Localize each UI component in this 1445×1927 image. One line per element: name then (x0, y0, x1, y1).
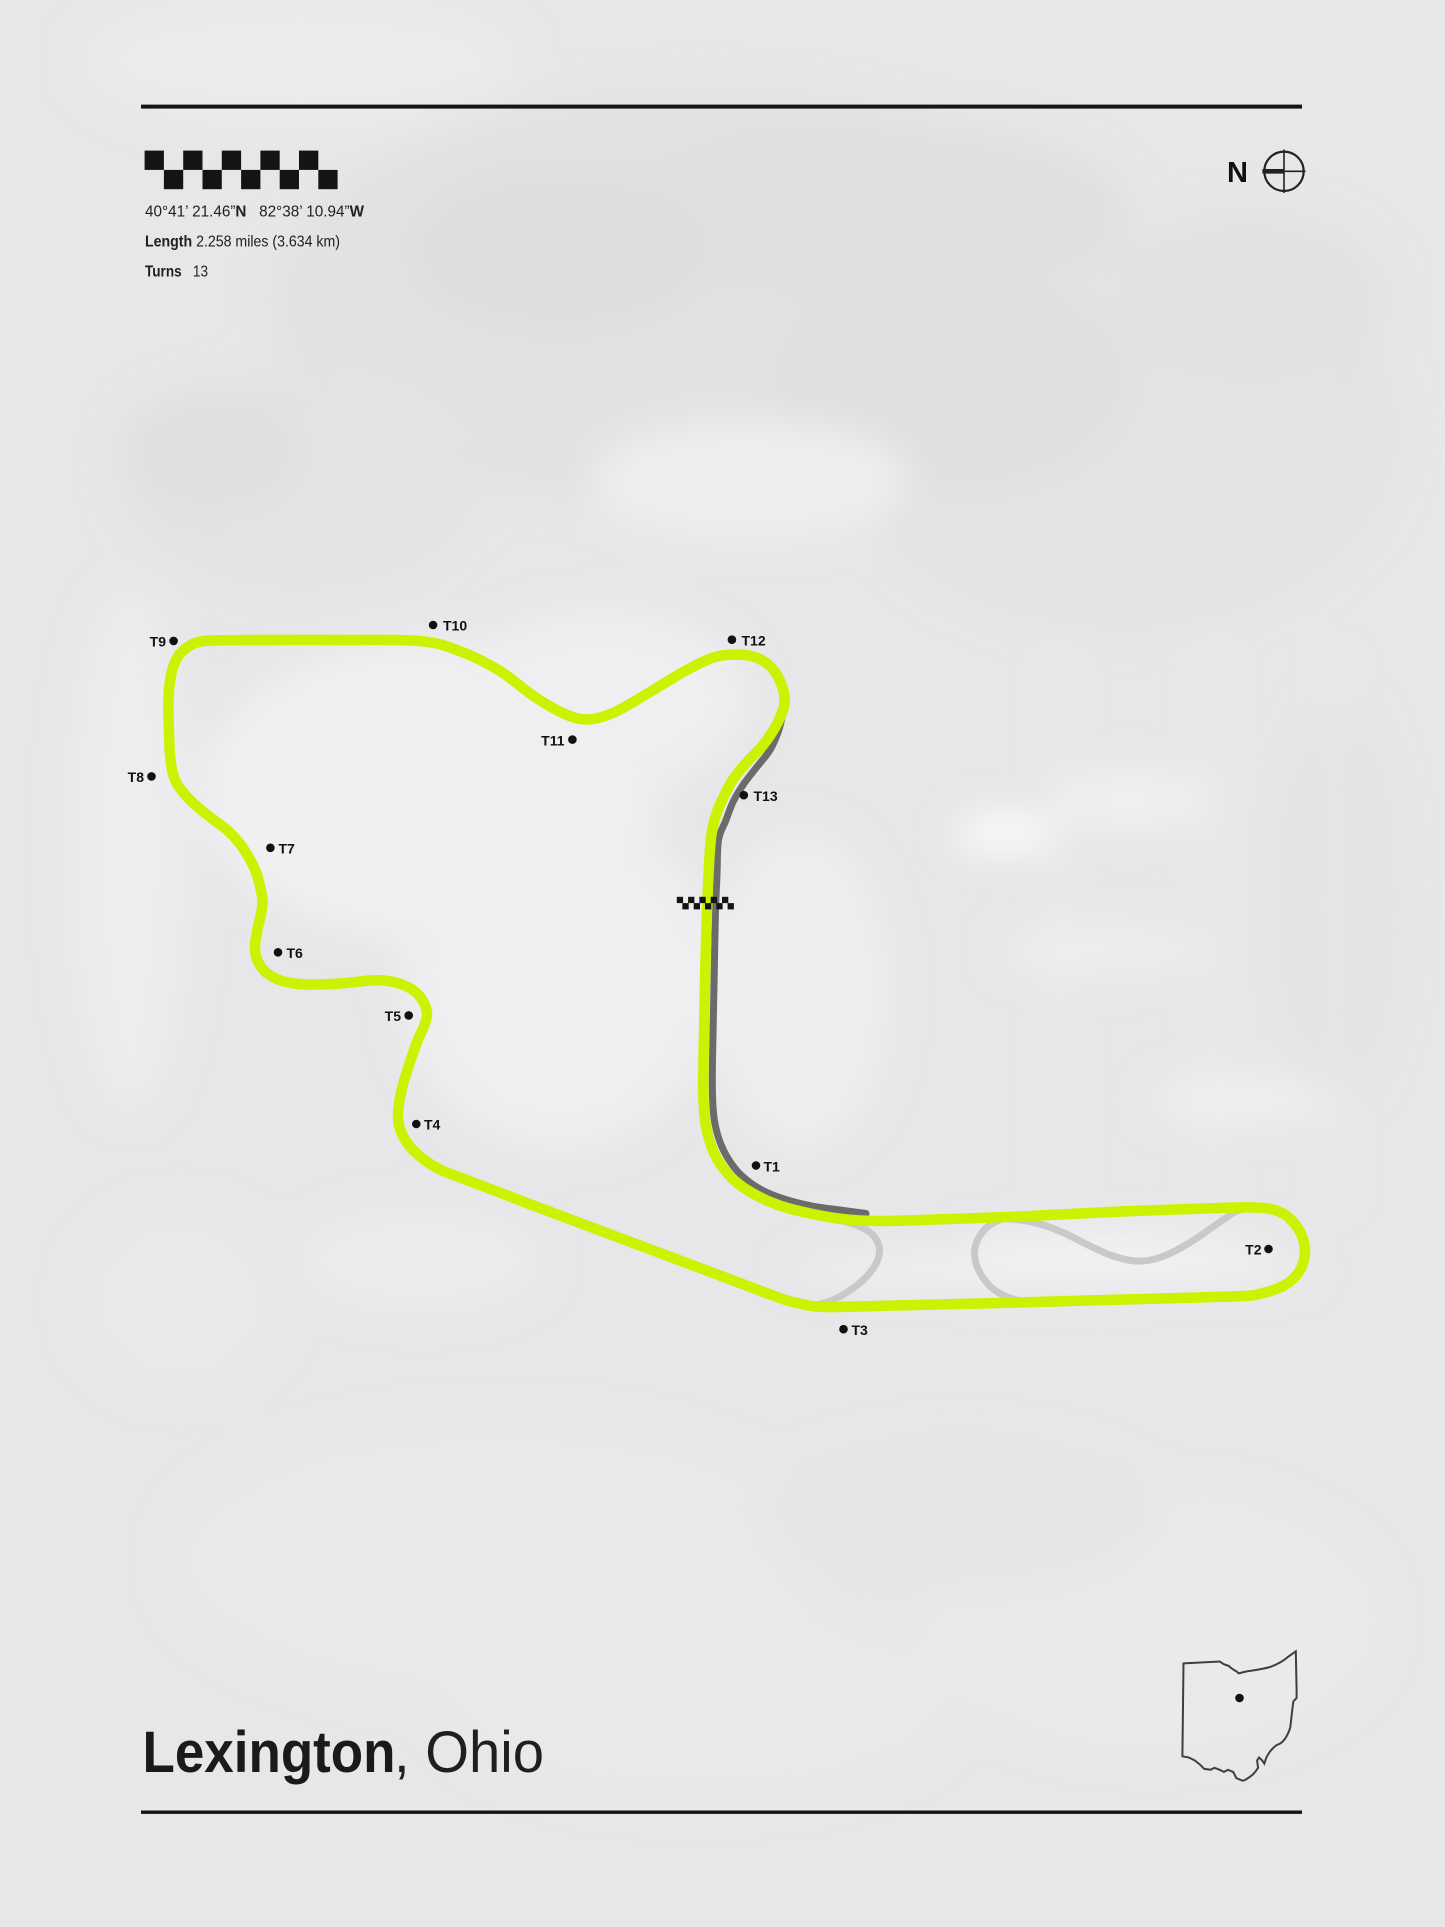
svg-text:, Ohio: , Ohio (394, 1720, 544, 1785)
svg-text:T5: T5 (385, 1008, 402, 1024)
svg-text:T13: T13 (754, 788, 778, 804)
svg-text:N: N (1227, 157, 1248, 189)
svg-text:T11: T11 (541, 733, 565, 749)
svg-text:Lexington: Lexington (143, 1720, 396, 1785)
svg-text:T3: T3 (852, 1322, 869, 1338)
svg-text:Turns 13: Turns 13 (145, 264, 208, 281)
svg-text:40°41’ 21.46”N 82°38’ 10.94”: 40°41’ 21.46”N 82°38’ 10.94”W (145, 204, 365, 221)
svg-text:T8: T8 (128, 769, 145, 785)
svg-text:T4: T4 (424, 1117, 441, 1133)
svg-text:T7: T7 (279, 841, 296, 857)
svg-text:T2: T2 (1245, 1242, 1262, 1258)
svg-text:T6: T6 (287, 945, 304, 961)
svg-text:T1: T1 (764, 1159, 781, 1175)
svg-text:T9: T9 (150, 634, 167, 650)
svg-text:T12: T12 (742, 633, 766, 649)
svg-text:T10: T10 (443, 618, 467, 634)
svg-text:Length 2.258 miles (3.634 km): Length 2.258 miles (3.634 km) (145, 234, 340, 251)
